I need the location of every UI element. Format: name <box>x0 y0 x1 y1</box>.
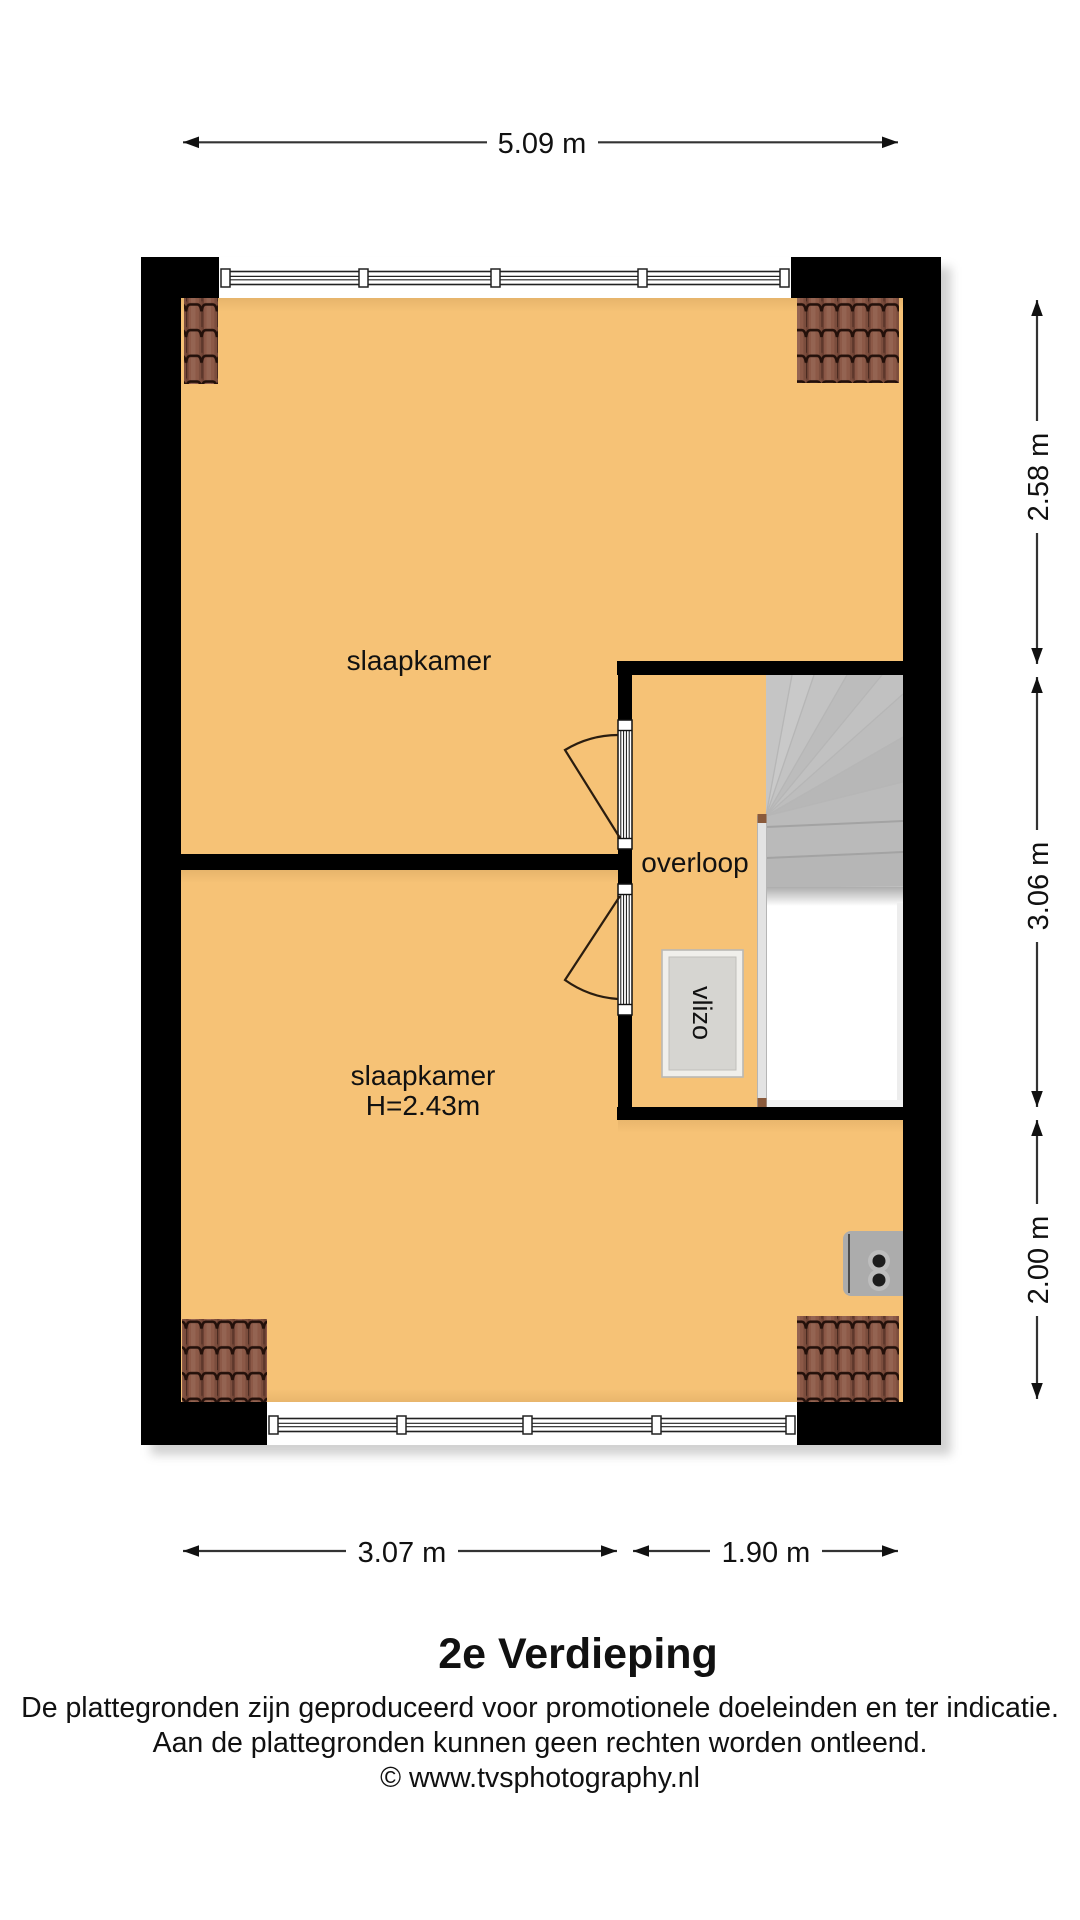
svg-text:5.09 m: 5.09 m <box>498 128 587 160</box>
svg-text:overloop: overloop <box>641 847 748 878</box>
svg-text:De plattegronden zijn geproduc: De plattegronden zijn geproduceerd voor … <box>21 1692 1059 1724</box>
svg-text:© www.tvsphotography.nl: © www.tvsphotography.nl <box>380 1762 700 1794</box>
svg-text:1.90 m: 1.90 m <box>722 1537 811 1569</box>
svg-text:2.00 m: 2.00 m <box>1023 1216 1055 1305</box>
svg-text:vlizo: vlizo <box>687 986 717 1040</box>
svg-text:3.06 m: 3.06 m <box>1023 842 1055 931</box>
svg-text:slaapkamer: slaapkamer <box>347 645 492 676</box>
svg-text:H=2.43m: H=2.43m <box>366 1090 480 1121</box>
svg-text:2e Verdieping: 2e Verdieping <box>438 1630 718 1678</box>
svg-text:2.58 m: 2.58 m <box>1023 433 1055 522</box>
svg-text:Aan de plattegronden kunnen ge: Aan de plattegronden kunnen geen rechten… <box>153 1727 928 1759</box>
svg-text:slaapkamer: slaapkamer <box>351 1060 496 1091</box>
svg-text:3.07 m: 3.07 m <box>358 1537 447 1569</box>
